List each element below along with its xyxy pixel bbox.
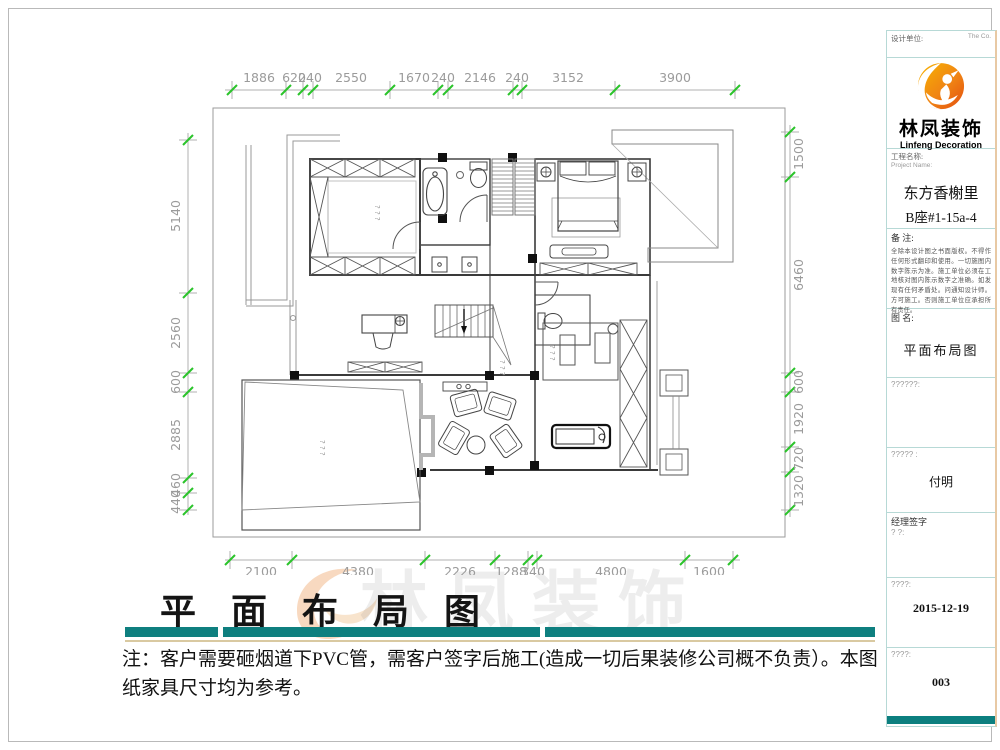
svg-text:? ? ?: ? ? ? (373, 205, 381, 221)
svg-text:? ? ?: ? ? ? (498, 360, 506, 376)
drawing-name-label: 图 名: (891, 311, 991, 324)
dim-label: 340 (521, 564, 545, 575)
sheet-number-section: ????: 003 (887, 648, 995, 714)
dim-label: 1600 (693, 564, 725, 575)
bathtub-icon (423, 168, 447, 215)
title-block: 设计单位: The Co. 林凤装饰 Linfeng Decoration 工程… (886, 30, 997, 727)
dim-label: 1670 (398, 70, 430, 85)
dim-label: 240 (298, 70, 322, 85)
title-underline-bar (125, 627, 218, 637)
blank-field-label: ??????: (891, 380, 991, 389)
dim-label: 1320 (791, 475, 806, 507)
closet-hatch (492, 159, 535, 215)
lounge-chairs (437, 389, 523, 459)
vanity-sinks (432, 257, 477, 272)
logo-section: 林凤装饰 Linfeng Decoration (887, 58, 995, 149)
room-marks: ? ? ? ? ? ? ? ? ? ? ? ? (318, 205, 556, 456)
design-unit-right: The Co. (968, 33, 991, 40)
dim-label: 240 (431, 70, 455, 85)
property-outline (213, 108, 785, 537)
dim-label: 6460 (791, 259, 806, 291)
wardrobe-icon (310, 159, 647, 467)
eave-outlines (246, 135, 340, 375)
svg-text:? ? ?: ? ? ? (318, 440, 326, 456)
svg-text:? ? ?: ? ? ? (548, 345, 556, 361)
dim-label: 720 (791, 447, 806, 471)
sheet-number-label: ????: (891, 650, 991, 659)
slanted-room (242, 380, 433, 530)
walls (295, 159, 658, 470)
design-unit-row: 设计单位: The Co. (887, 31, 995, 58)
blank-field-section: ??????: (887, 378, 995, 448)
desk-icon (362, 315, 407, 349)
project-label-en: Project Name: (891, 162, 991, 169)
toilet-icon (470, 162, 487, 188)
project-section: 工程名称: Project Name: 东方香榭里 B座#1-15a-4 (887, 149, 995, 229)
stairs-icon (435, 305, 511, 365)
floor-drain-icon (457, 172, 464, 179)
tea-table (467, 436, 485, 454)
sheet-number-value: 003 (891, 675, 991, 690)
date-section: ????: 2015-12-19 (887, 578, 995, 648)
floor-plan: 1886 620 240 2550 1670 240 2146 240 3152… (170, 55, 820, 575)
designer-name: 付明 (891, 473, 991, 490)
dim-label: 2100 (245, 564, 277, 575)
title-block-footer-bar (887, 716, 995, 724)
dim-label: 240 (505, 70, 529, 85)
dim-label: 440 (170, 490, 183, 514)
drawing-name-section: 图 名: 平面布局图 (887, 309, 995, 378)
dim-label: 2146 (464, 70, 496, 85)
remarks-section: 备 注: 全除本设计图之书面版权。不得作任何形式翻印和使用。一切施图内数字陈示为… (887, 229, 995, 309)
dim-label: 600 (791, 370, 806, 394)
date-label: ????: (891, 580, 991, 589)
construction-note: 注：客户需要砸烟道下PVC管，需客户签字后施工(造成一切后果装修公司概不负责）。… (122, 646, 894, 703)
dim-label: 4380 (342, 564, 374, 575)
cad-sheet: { "title_block": { "design_unit_label": … (0, 0, 1000, 750)
bed-icon (537, 161, 646, 237)
bay-window (660, 370, 688, 475)
balcony-outline (612, 130, 733, 262)
designer-section: ????? : 付明 (887, 448, 995, 513)
dim-label: 600 (170, 370, 183, 394)
dim-label: 5140 (170, 200, 183, 232)
title-underline-bar (223, 627, 540, 637)
shelf-icon (443, 382, 487, 391)
dim-label: 4800 (595, 564, 627, 575)
dim-label: 3900 (659, 70, 691, 85)
drawing-name-value: 平面布局图 (891, 340, 991, 359)
treadmill-icon (552, 425, 610, 448)
dim-label: 1920 (791, 403, 806, 435)
manager-section: 经理签字 ? ?: (887, 513, 995, 578)
tv-cabinet-icon (550, 245, 608, 258)
title-underline-bar (545, 627, 875, 637)
columns (290, 153, 539, 477)
door-arcs (393, 195, 558, 305)
dim-label: 2550 (335, 70, 367, 85)
dim-label: 1500 (791, 138, 806, 170)
toilet-icon (538, 313, 562, 329)
dim-label: 3152 (552, 70, 584, 85)
project-unit: B座#1-15a-4 (891, 206, 991, 226)
dim-label: 2226 (444, 564, 476, 575)
dimension-lines: 1886 620 240 2550 1670 240 2146 240 3152… (170, 70, 806, 575)
date-value: 2015-12-19 (891, 601, 991, 616)
designer-label: ????? : (891, 450, 991, 459)
dim-label: 2885 (170, 419, 183, 451)
remarks-label: 备 注: (891, 231, 991, 244)
dim-label: 2560 (170, 317, 183, 349)
design-unit-label: 设计单位: (891, 33, 923, 44)
remarks-text: 全除本设计图之书面版权。不得作任何形式翻印和使用。一切施图内数字陈示为准。施工单… (891, 247, 991, 315)
brand-name-cn: 林凤装饰 (887, 120, 995, 140)
project-label: 工程名称: (891, 151, 991, 162)
dim-label: 1886 (243, 70, 275, 85)
manager-sign-label: 经理签字 (891, 515, 991, 528)
manager-sub-label: ? ?: (891, 528, 991, 537)
project-name: 东方香榭里 (891, 183, 991, 206)
title-underline-accent (125, 640, 875, 642)
linfeng-logo-icon (910, 60, 972, 114)
